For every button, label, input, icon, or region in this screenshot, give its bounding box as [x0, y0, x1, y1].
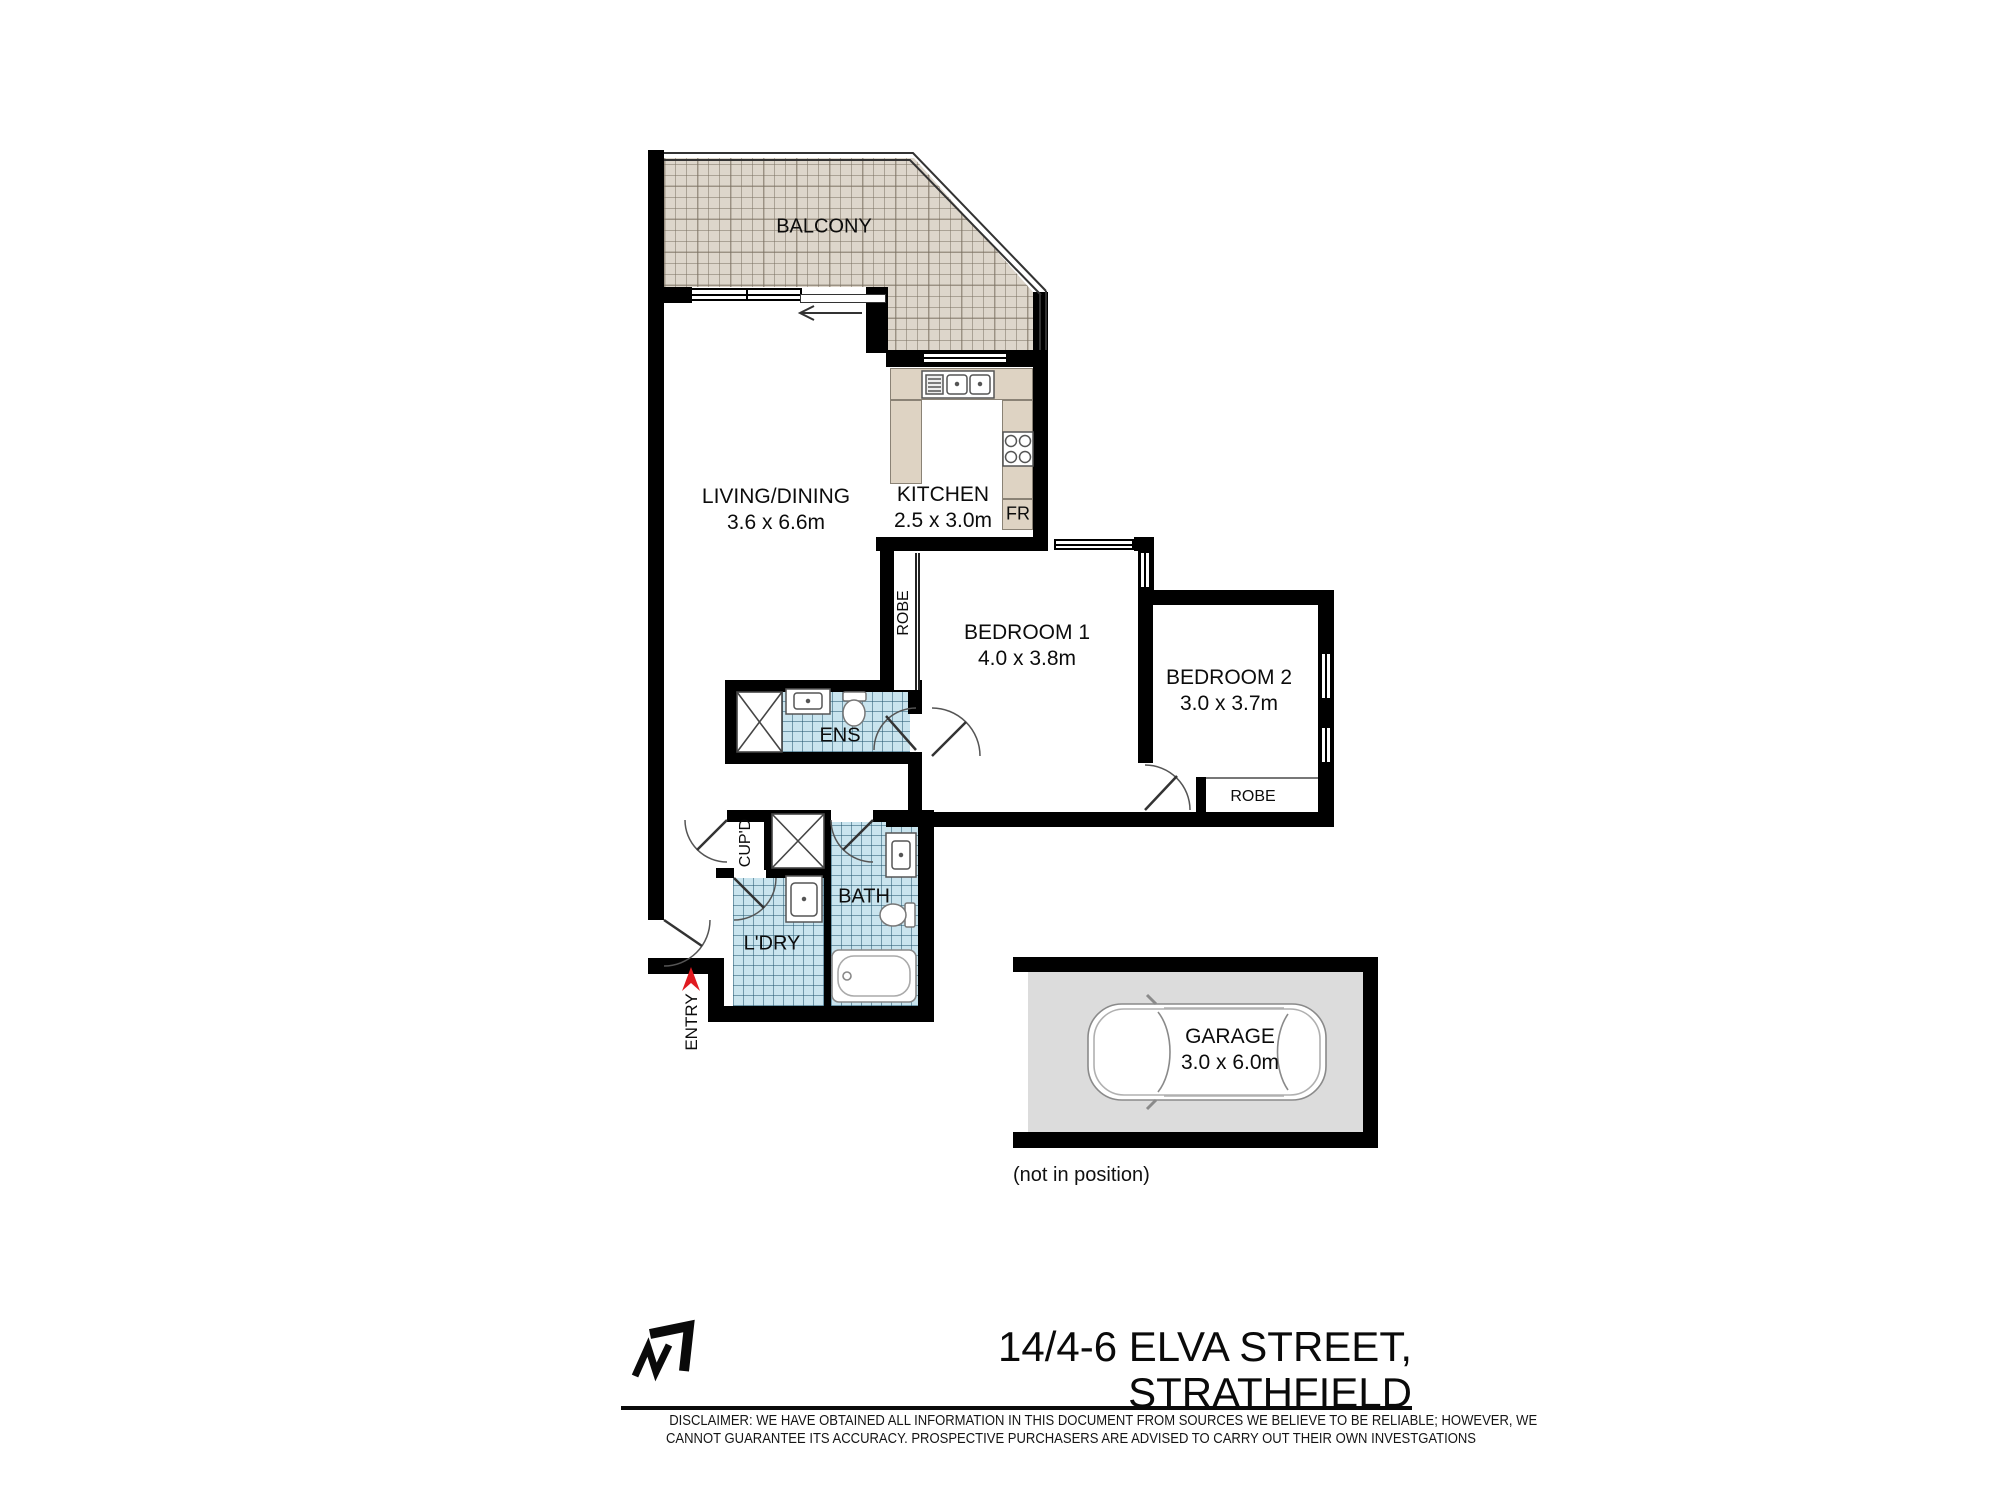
kitchen-counter-left — [890, 400, 922, 484]
wall — [1134, 537, 1154, 551]
bedroom2-window — [1320, 726, 1332, 764]
wall — [725, 752, 910, 764]
wall — [918, 810, 934, 1022]
garage-dims: 3.0 x 6.0m — [1181, 1051, 1279, 1075]
linen-cupboard-box — [772, 814, 824, 868]
wall — [880, 540, 894, 692]
wall — [876, 537, 1048, 551]
wall — [908, 752, 922, 812]
bedroom2-robe-label: ROBE — [1230, 788, 1275, 806]
footer-divider — [621, 1406, 1412, 1410]
wall — [766, 868, 831, 878]
wall — [772, 810, 830, 822]
address-line1: 14/4-6 ELVA STREET, — [621, 1324, 1412, 1370]
balcony-floor — [664, 158, 1048, 352]
sliding-door-panel — [800, 294, 886, 303]
ens-shower-box — [737, 692, 782, 752]
wall — [873, 810, 920, 822]
disclaimer-line2: CANNOT GUARANTEE ITS ACCURACY. PROSPECTI… — [666, 1430, 1476, 1448]
address-title: 14/4-6 ELVA STREET, STRATHFIELD — [621, 1324, 1412, 1416]
fridge-label: FR — [1006, 504, 1030, 525]
bedroom2-dims: 3.0 x 3.7m — [1180, 692, 1278, 716]
wall — [648, 150, 664, 920]
laundry-label: L'DRY — [744, 933, 801, 956]
wall — [725, 680, 922, 692]
bedroom1-side-window — [1139, 551, 1151, 589]
bedroom2-window — [1320, 652, 1332, 700]
sliding-door-arrow — [800, 306, 862, 320]
floorplan-graphics — [0, 0, 2000, 1500]
kitchen-label: KITCHEN — [897, 483, 989, 507]
living-window — [746, 288, 802, 301]
garage-note: (not in position) — [1013, 1164, 1150, 1187]
wall — [664, 287, 692, 303]
bedroom1-label: BEDROOM 1 — [964, 621, 1090, 645]
wall — [1033, 350, 1048, 550]
kitchen-window — [922, 352, 1008, 364]
wall — [886, 812, 1138, 827]
wall — [716, 868, 734, 878]
wall — [764, 810, 772, 870]
bedroom1-window — [1054, 539, 1134, 550]
fridge-divider — [1002, 498, 1033, 500]
bedroom1-robe-label: ROBE — [895, 590, 913, 635]
wall — [1196, 777, 1206, 812]
wall — [1138, 812, 1334, 827]
garage-label: GARAGE — [1185, 1025, 1275, 1049]
garage-door-opening — [1013, 972, 1028, 1132]
bath-label: BATH — [838, 886, 890, 909]
bedroom1-dims: 4.0 x 3.8m — [978, 647, 1076, 671]
wall — [1318, 590, 1334, 827]
ensuite-label: ENS — [819, 725, 860, 748]
wall — [824, 810, 831, 870]
wall — [1138, 590, 1334, 605]
balcony-label: BALCONY — [776, 216, 872, 239]
wall — [1138, 605, 1153, 763]
entry-label: ENTRY — [682, 993, 702, 1050]
kitchen-dims: 2.5 x 3.0m — [894, 509, 992, 533]
living-dims: 3.6 x 6.6m — [727, 511, 825, 535]
wall — [1033, 292, 1048, 352]
wall — [708, 1006, 934, 1022]
disclaimer-line1: DISCLAIMER: WE HAVE OBTAINED ALL INFORMA… — [669, 1412, 1537, 1430]
wall — [824, 868, 831, 1006]
bedroom2-label: BEDROOM 2 — [1166, 666, 1292, 690]
bath-floor — [831, 822, 918, 1006]
disclaimer: DISCLAIMER: WE HAVE OBTAINED ALL INFORMA… — [621, 1412, 1412, 1448]
living-window — [690, 288, 748, 301]
cupboard-label: CUP'D — [737, 819, 755, 867]
floorplan-page: BALCONY LIVING/DINING 3.6 x 6.6m KITCHEN… — [0, 0, 2000, 1500]
kitchen-counter-top — [890, 368, 1033, 400]
living-label: LIVING/DINING — [702, 485, 850, 509]
